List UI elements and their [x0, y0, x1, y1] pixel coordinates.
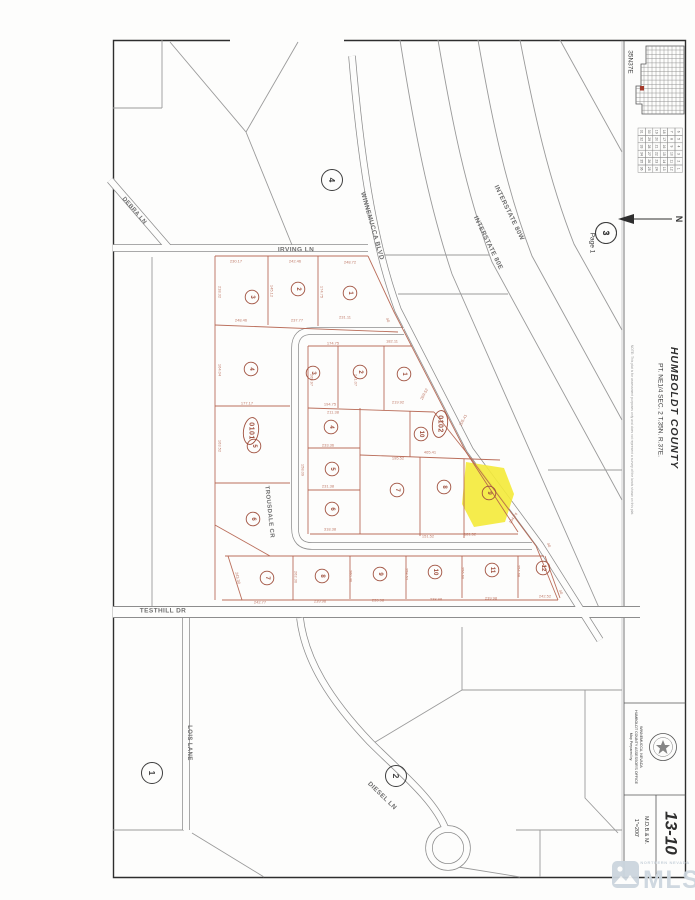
section-number: 11	[669, 160, 673, 164]
svg-text:5: 5	[329, 467, 335, 471]
street-label-diesel-ln: DIESEL LN	[366, 780, 398, 811]
section-number: 27	[647, 152, 651, 156]
section-number: 1	[677, 168, 681, 170]
section-number: 21	[655, 145, 659, 149]
dimension-label: 40	[385, 317, 391, 324]
section-number: 6	[677, 131, 681, 133]
lot-number-2: 2	[291, 282, 305, 296]
north-arrow: N	[618, 214, 684, 224]
section-number: 2	[677, 160, 681, 162]
dimension-label: 239.98	[485, 596, 498, 601]
section-number: 24	[655, 167, 659, 171]
lot-number-10: 10	[428, 565, 442, 579]
prepared-by-line1: Map Prepared by:	[629, 733, 633, 762]
street-label-debra-ln: DEBRA LN	[121, 196, 148, 226]
dimension-label: 248.46	[235, 318, 248, 323]
area-numbers: 4312	[142, 170, 617, 787]
dimension-label: 242.77	[254, 600, 267, 605]
svg-text:4: 4	[327, 178, 337, 183]
section-number: 26	[647, 159, 651, 163]
section-locator-grid: 3130191876322920178533282116943427221510…	[638, 128, 682, 172]
section-number: 16	[662, 145, 666, 149]
north-label: N	[674, 216, 684, 223]
lot-number-6: 6	[325, 502, 339, 516]
north-arrow-head	[618, 214, 634, 224]
lot-number-7: 7	[390, 483, 404, 497]
dimension-label: 269.52	[419, 387, 430, 401]
street-label-interstate-80e: INTERSTATE 80E	[472, 215, 504, 271]
meridian-label: M.D.B.& M.	[643, 816, 649, 845]
dimension-labels: 230.17242.46248.72218.32145.12174.75248.…	[218, 259, 565, 605]
section-number: 3	[677, 153, 681, 155]
dimension-label: 265.97	[310, 374, 315, 387]
dimension-label: 256.60	[461, 567, 466, 580]
prepared-by-line3: WINNEMUCCA, NEVADA	[639, 726, 643, 768]
section-number: 13	[662, 167, 666, 171]
section-number: 32	[640, 137, 644, 141]
dimension-label: 194.75	[324, 402, 337, 407]
area-number-1: 1	[142, 763, 163, 784]
svg-text:3: 3	[249, 295, 255, 299]
lot-number-8: 8	[315, 569, 329, 583]
mls-brand: MLS	[643, 866, 695, 894]
lot-number-3: 3	[245, 290, 259, 304]
svg-text:1: 1	[401, 372, 407, 376]
section-number: 29	[647, 137, 651, 141]
dimension-label: 260.40	[349, 570, 354, 583]
dimension-label: 158.09	[301, 464, 306, 477]
svg-text:1: 1	[147, 771, 157, 776]
street-label-lois-lane: LOIS LANE	[186, 725, 192, 761]
assessor-seal	[650, 734, 677, 761]
section-number: 35	[640, 159, 644, 163]
dimension-label: 211.38	[327, 410, 340, 415]
svg-text:7: 7	[394, 488, 400, 492]
svg-text:12: 12	[540, 565, 546, 572]
section-number: 12	[669, 167, 673, 171]
section-number: 36	[640, 167, 644, 171]
svg-text:5: 5	[251, 444, 257, 448]
svg-text:8: 8	[441, 485, 447, 489]
svg-text:2: 2	[295, 287, 301, 291]
dimension-label: 231.11	[339, 315, 352, 320]
dimension-label: 195.52	[392, 456, 405, 461]
svg-text:11: 11	[489, 567, 495, 574]
street-label-testhill-dr: TESTHILL DR	[140, 608, 187, 615]
section-number: 17	[662, 137, 666, 141]
prepared-by-block: Map Prepared by: HUMBOLDT COUNTY ASSESSO…	[629, 710, 677, 785]
dimension-label: 239.98	[372, 598, 385, 603]
section-number: 25	[647, 167, 651, 171]
lot-number-9: 9	[373, 567, 387, 581]
lot-number-10: 10	[414, 427, 428, 441]
dimension-label: 465.41	[424, 450, 437, 455]
plat-map: IRVING LNDEBRA LNWINNEMUCCA BLVDINTERSTA…	[0, 0, 695, 900]
lot-number-4: 4	[324, 420, 338, 434]
dimension-label: 181.52	[464, 532, 477, 537]
svg-text:10: 10	[432, 569, 438, 576]
page-ref-number: 3	[601, 230, 611, 235]
lot-number-6: 6	[246, 512, 260, 526]
section-number: 18	[662, 130, 666, 134]
mls-tagline: NORTHERN NEVADA	[640, 860, 689, 865]
svg-text:4: 4	[328, 425, 334, 429]
dimension-label: 151.52	[422, 534, 435, 539]
page-ref-label: Page 1	[589, 233, 596, 254]
dimension-label: 239.98	[314, 599, 327, 604]
street-label-trousdale-cr: TROUSDALE CR	[263, 486, 274, 539]
dimension-label: 230.17	[230, 259, 243, 264]
svg-text:7: 7	[264, 576, 270, 580]
section-number: 8	[669, 138, 673, 140]
section-number: 19	[655, 130, 659, 134]
dimension-label: 238.98	[430, 597, 443, 602]
lot-number-11: 11	[485, 563, 499, 577]
svg-text:6: 6	[250, 517, 256, 521]
dimension-label: 219.92	[392, 400, 405, 405]
section-number: 34	[640, 152, 644, 156]
section-number: 5	[677, 138, 681, 140]
dimension-label: 174.75	[320, 286, 325, 299]
township-locator-grid	[636, 46, 684, 114]
legal-description: PT. NE1/4 SEC. 2 T.35N. R.37E.	[657, 363, 664, 457]
dimension-label: 177.17	[241, 401, 254, 406]
lot-number-1: 1	[397, 367, 411, 381]
dimension-label: 248.72	[344, 260, 357, 265]
section-number: 9	[669, 146, 673, 148]
dimension-label: 242.46	[289, 259, 302, 264]
dimension-label: 145.12	[270, 285, 275, 298]
scale-block: 1"=200' M.D.B.& M. 13-10	[633, 811, 681, 855]
lot-number-4: 4	[244, 362, 258, 376]
section-number: 20	[655, 137, 659, 141]
dimension-label: 258.52	[405, 568, 410, 581]
dimension-label: 231.38	[322, 484, 335, 489]
assessment-note: NOTE: This plat is for assessment purpos…	[630, 345, 634, 516]
svg-text:6: 6	[329, 507, 335, 511]
township-range-label: 35N37E	[627, 50, 634, 74]
section-number: 22	[655, 152, 659, 156]
map-number: 13-10	[662, 811, 681, 855]
section-number: 15	[662, 152, 666, 156]
scale-label: 1"=200'	[633, 819, 639, 837]
svg-text:4: 4	[248, 367, 254, 371]
dimension-label: 254.68	[517, 565, 522, 578]
svg-text:8: 8	[319, 574, 325, 578]
svg-text:9: 9	[377, 572, 383, 576]
area-number-4: 4	[322, 170, 343, 191]
lot-number-2: 2	[353, 365, 367, 379]
dimension-label: 174.75	[327, 341, 340, 346]
dimension-label: 218.32	[218, 286, 223, 299]
svg-text:10: 10	[418, 431, 424, 438]
section-number: 4	[677, 146, 681, 148]
section-number: 23	[655, 159, 659, 163]
lot-number-7: 7	[260, 571, 274, 585]
dimension-label: 262.30	[294, 571, 299, 584]
dimension-label: 205.41	[458, 413, 469, 427]
section-number: 31	[640, 130, 644, 134]
dimension-label: 40	[546, 542, 552, 549]
dimension-label: 318.38	[324, 527, 337, 532]
svg-text:0101: 0101	[248, 422, 255, 440]
township-highlight-cell	[640, 86, 644, 91]
section-number: 33	[640, 145, 644, 149]
svg-text:0102: 0102	[437, 415, 444, 433]
section-number: 7	[669, 131, 673, 133]
section-number: 14	[662, 159, 666, 163]
dimension-label: 233.36	[322, 443, 335, 448]
assessor-plat-map-page: IRVING LNDEBRA LNWINNEMUCCA BLVDINTERSTA…	[0, 0, 695, 900]
block-label-0101: 0101	[242, 417, 261, 446]
dimension-label: 164.04	[218, 364, 223, 377]
page-reference: 3 Page 1	[589, 223, 617, 254]
street-label-irving-ln: IRVING LN	[278, 247, 314, 254]
lot-number-1: 1	[343, 286, 357, 300]
mls-watermark: NORTHERN NEVADA MLS	[612, 860, 695, 894]
section-number: 10	[669, 152, 673, 156]
dimension-label: 242.52	[539, 594, 552, 599]
dimension-label: 237.77	[291, 318, 304, 323]
prepared-by-line2: HUMBOLDT COUNTY ASSESSOR'S OFFICE	[634, 710, 638, 785]
county-title: HUMBOLDT COUNTY	[668, 347, 680, 469]
section-number: 30	[647, 130, 651, 134]
svg-text:2: 2	[391, 774, 401, 779]
lot-number-5: 5	[325, 462, 339, 476]
lot-number-8: 8	[437, 480, 451, 494]
dimension-label: 163.52	[218, 440, 223, 453]
svg-text:1: 1	[347, 291, 353, 295]
dimension-label: 182.11	[386, 339, 399, 344]
street-label-interstate-80w: INTERSTATE 80W	[493, 184, 526, 242]
section-number: 28	[647, 145, 651, 149]
lot-number-5: 5	[247, 439, 261, 453]
